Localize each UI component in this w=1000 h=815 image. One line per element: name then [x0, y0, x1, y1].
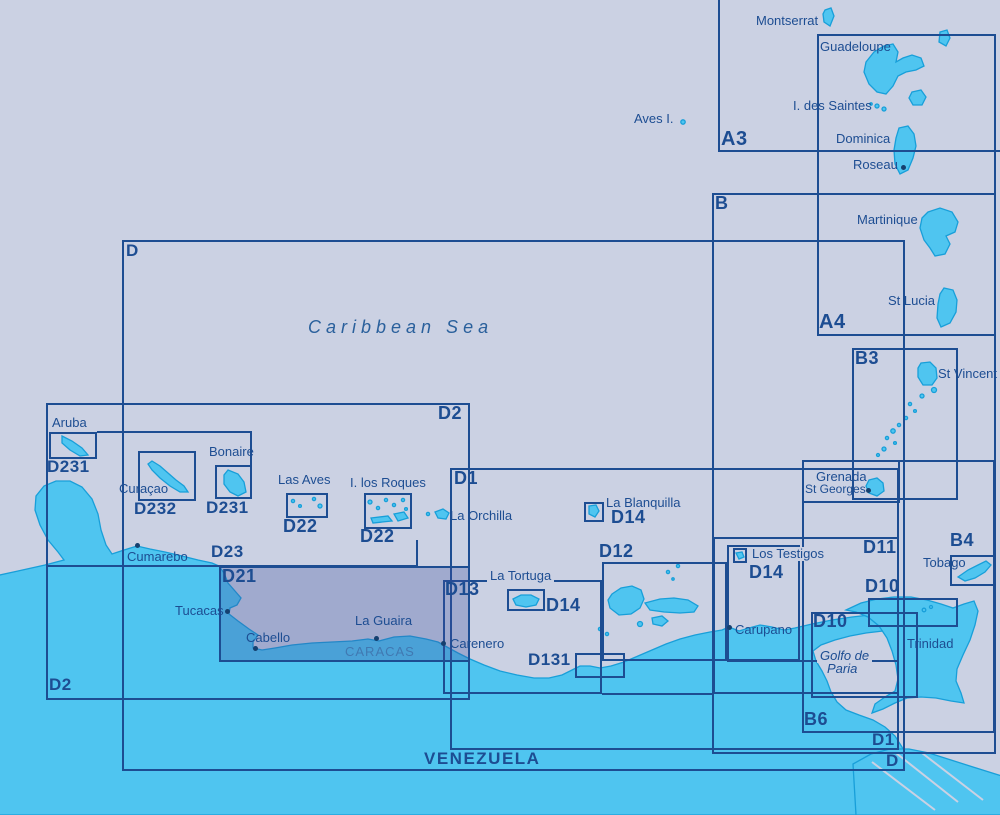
place-label-i-los-roques: I. los Roques	[350, 476, 426, 490]
place-label-las-aves: Las Aves	[278, 473, 331, 487]
place-label-aves-i: Aves I.	[634, 112, 674, 126]
islet-aves	[681, 120, 685, 124]
chart-label-d231-bonaire[interactable]: D231	[206, 499, 249, 517]
chart-label-d11[interactable]: D11	[863, 538, 897, 557]
sea-name-label: Caribbean Sea	[308, 318, 493, 337]
chart-box-d231-bonaire[interactable]	[215, 465, 252, 499]
place-label-cabello: Cabello	[246, 631, 290, 645]
place-label-i-des-saintes: I. des Saintes	[793, 99, 872, 113]
place-label-tucacas: Tucacas	[175, 604, 224, 618]
place-label-st-vincent: St Vincent	[938, 367, 997, 381]
chart-label-d10-upper[interactable]: D10	[865, 577, 900, 596]
la-guaira-dot	[374, 636, 379, 641]
chart-edge-d231-connector-h	[97, 431, 251, 433]
chart-label-d2-bottomleft[interactable]: D2	[49, 676, 72, 694]
chart-label-d-bottomright[interactable]: D	[886, 752, 899, 770]
chart-box-d12[interactable]	[602, 562, 727, 661]
place-label-la-blanquilla: La Blanquilla	[606, 496, 680, 510]
place-label-roseau: Roseau	[853, 158, 898, 172]
place-label-martinique: Martinique	[857, 213, 918, 227]
place-label-la-orchilla: La Orchilla	[450, 509, 512, 523]
tucacas-dot	[225, 609, 230, 614]
chart-box-d131[interactable]	[575, 653, 625, 678]
cabello-dot	[253, 646, 258, 651]
carupano-dot	[727, 625, 732, 630]
chart-label-d21[interactable]: D21	[222, 567, 257, 586]
chart-label-d22-aves[interactable]: D22	[283, 517, 318, 536]
place-label-aruba: Aruba	[52, 416, 87, 430]
chart-box-d14-blanquilla[interactable]	[584, 502, 604, 522]
place-label-dominica: Dominica	[836, 132, 890, 146]
place-label-cumarebo: Cumarebo	[127, 550, 188, 564]
place-label-la-tortuga: La Tortuga	[487, 569, 554, 583]
country-label: VENEZUELA	[424, 750, 540, 768]
chart-label-d131[interactable]: D131	[528, 651, 571, 669]
chart-label-d14-blanquilla[interactable]: D14	[611, 508, 646, 527]
cumarebo-dot	[135, 543, 140, 548]
place-label-montserrat: Montserrat	[756, 14, 818, 28]
chart-box-testigos-islet[interactable]	[733, 548, 747, 563]
chart-box-d22-roques[interactable]	[364, 493, 412, 529]
place-label-guadeloupe: Guadeloupe	[820, 40, 891, 54]
place-label-bonaire: Bonaire	[209, 445, 254, 459]
place-label-la-guaira: La Guaira	[355, 614, 412, 628]
place-label-tobago: Tobago	[923, 556, 966, 570]
chart-label-d14-testigos[interactable]: D14	[749, 563, 784, 582]
chart-edge-d13-extension	[602, 693, 714, 695]
chart-box-d231-aruba[interactable]	[49, 432, 97, 459]
chart-box-d14-tortuga[interactable]	[507, 589, 545, 611]
chart-label-b6[interactable]: B6	[804, 710, 828, 729]
place-label-los-testigos: Los Testigos	[749, 547, 827, 561]
chart-label-d231-aruba[interactable]: D231	[47, 458, 90, 476]
place-label-st-lucia: St Lucia	[888, 294, 935, 308]
place-label-carupano: Carupano	[735, 623, 792, 637]
chart-label-d13[interactable]: D13	[445, 580, 480, 599]
carenero-dot	[441, 641, 446, 646]
chart-index-map: A3 A4 B B3 B4 B6 D D D1 D1 D2 D2 D10 D10…	[0, 0, 1000, 815]
chart-label-b3[interactable]: B3	[855, 349, 879, 368]
chart-label-d1-topleft[interactable]: D1	[454, 469, 478, 488]
chart-edge-d12-extension	[727, 660, 899, 662]
place-label-golfo-de-paria-2: Paria	[824, 662, 860, 676]
place-label-caracas: CARACAS	[345, 645, 415, 659]
chart-label-d10-paria[interactable]: D10	[813, 612, 848, 631]
chart-label-a3[interactable]: A3	[721, 129, 748, 150]
chart-label-d-topleft[interactable]: D	[126, 242, 139, 260]
chart-label-d1-bottomright[interactable]: D1	[872, 731, 895, 749]
place-label-carenero: Carenero	[450, 637, 504, 651]
chart-edge-d23-right	[416, 540, 418, 567]
place-label-trinidad: Trinidad	[907, 637, 953, 651]
chart-label-d2-topright[interactable]: D2	[438, 404, 462, 423]
roseau-dot	[901, 165, 906, 170]
place-label-curacao: Curaçao	[119, 482, 168, 496]
chart-box-d22-aves[interactable]	[286, 493, 328, 518]
chart-label-a4[interactable]: A4	[819, 312, 846, 333]
chart-label-b[interactable]: B	[715, 194, 729, 213]
chart-label-d23[interactable]: D23	[211, 543, 244, 561]
chart-label-d22-roques[interactable]: D22	[360, 527, 395, 546]
chart-label-d14-tortuga[interactable]: D14	[546, 596, 581, 615]
st-georges-dot	[866, 488, 871, 493]
place-label-st-georges: St Georges	[805, 483, 866, 496]
chart-label-d12[interactable]: D12	[599, 542, 634, 561]
chart-label-b4[interactable]: B4	[950, 531, 974, 550]
chart-label-d232[interactable]: D232	[134, 500, 177, 518]
